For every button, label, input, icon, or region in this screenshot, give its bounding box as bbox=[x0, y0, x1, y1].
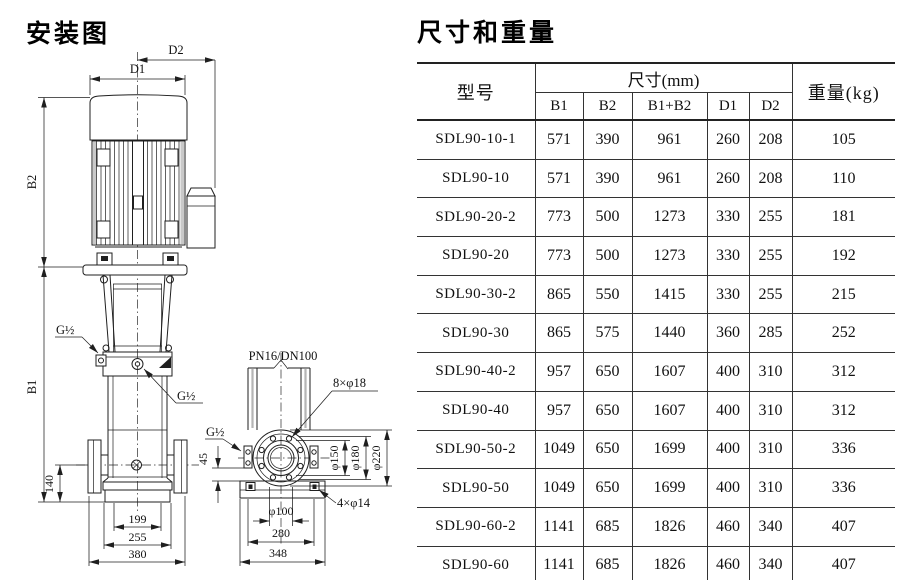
junction-box bbox=[187, 196, 215, 248]
cell-b1b2: 1273 bbox=[632, 198, 707, 237]
pump-side-view: PN16/DN100 bbox=[196, 349, 392, 566]
cell-b2: 390 bbox=[583, 120, 632, 159]
d2-label: D2 bbox=[168, 43, 183, 57]
dim255-label: 255 bbox=[129, 530, 147, 544]
phi150-label: φ150 bbox=[327, 446, 341, 471]
header-d2: D2 bbox=[749, 93, 792, 121]
cell-model: SDL90-30-2 bbox=[417, 275, 535, 314]
table-body: SDL90-10-1 571 390 961 260 208 105 SDL90… bbox=[417, 120, 895, 580]
cell-d1: 400 bbox=[707, 430, 749, 469]
cell-d1: 330 bbox=[707, 275, 749, 314]
cell-d1: 460 bbox=[707, 546, 749, 580]
side-g-half-label: G½ bbox=[206, 425, 224, 439]
head-side-fitting bbox=[96, 355, 106, 366]
cell-b2: 575 bbox=[583, 314, 632, 353]
cell-d1: 400 bbox=[707, 469, 749, 508]
cell-d2: 208 bbox=[749, 159, 792, 198]
motor-foot-slot bbox=[167, 256, 174, 261]
cell-d2: 340 bbox=[749, 507, 792, 546]
cell-model: SDL90-40-2 bbox=[417, 353, 535, 392]
table-row: SDL90-30 865 575 1440 360 285 252 bbox=[417, 314, 895, 353]
dimensions-weight-title: 尺寸和重量 bbox=[417, 13, 557, 49]
table-row: SDL90-60-2 1141 685 1826 460 340 407 bbox=[417, 507, 895, 546]
header-model: 型号 bbox=[417, 63, 535, 120]
cell-b1b2: 1440 bbox=[632, 314, 707, 353]
mounting-plate bbox=[83, 265, 187, 275]
cell-d1: 360 bbox=[707, 314, 749, 353]
datasheet-page: 安装图 尺寸和重量 bbox=[0, 0, 900, 580]
cell-d1: 400 bbox=[707, 391, 749, 430]
cell-b1b2: 1607 bbox=[632, 353, 707, 392]
cell-model: SDL90-10-1 bbox=[417, 120, 535, 159]
cell-weight: 407 bbox=[792, 507, 895, 546]
cell-d1: 260 bbox=[707, 159, 749, 198]
cell-b2: 650 bbox=[583, 430, 632, 469]
header-weight: 重量(kg) bbox=[792, 63, 895, 120]
cell-b1: 865 bbox=[535, 314, 583, 353]
cell-model: SDL90-30 bbox=[417, 314, 535, 353]
cell-b1: 1141 bbox=[535, 546, 583, 580]
g-half-mid-leader bbox=[144, 369, 176, 403]
bolt4-label: 4×φ14 bbox=[337, 496, 371, 510]
dim45-extensions bbox=[212, 468, 244, 481]
side-g-half-leader bbox=[223, 439, 241, 451]
cell-model: SDL90-50-2 bbox=[417, 430, 535, 469]
motor-vent-slot bbox=[165, 149, 178, 166]
base-bolt-slot bbox=[249, 485, 253, 490]
cell-d2: 310 bbox=[749, 430, 792, 469]
cell-model: SDL90-20 bbox=[417, 237, 535, 276]
plate-bolt-right bbox=[167, 276, 174, 283]
phi100-label: φ100 bbox=[269, 504, 294, 518]
header-size-group: 尺寸(mm) bbox=[535, 63, 792, 93]
g-half-mid-label: G½ bbox=[177, 389, 195, 403]
cell-weight: 105 bbox=[792, 120, 895, 159]
table-row: SDL90-10-1 571 390 961 260 208 105 bbox=[417, 120, 895, 159]
cell-d1: 460 bbox=[707, 507, 749, 546]
header-b1b2: B1+B2 bbox=[632, 93, 707, 121]
cell-b1b2: 1826 bbox=[632, 507, 707, 546]
head-right-fitting bbox=[159, 357, 171, 368]
cell-b1: 773 bbox=[535, 237, 583, 276]
cell-d2: 255 bbox=[749, 198, 792, 237]
motor-shaft-key bbox=[134, 196, 143, 209]
table-row: SDL90-20 773 500 1273 330 255 192 bbox=[417, 237, 895, 276]
cell-d2: 285 bbox=[749, 314, 792, 353]
cell-b1b2: 1607 bbox=[632, 391, 707, 430]
cell-b1b2: 1415 bbox=[632, 275, 707, 314]
cell-b1b2: 961 bbox=[632, 159, 707, 198]
table-row: SDL90-40-2 957 650 1607 400 310 312 bbox=[417, 353, 895, 392]
leg-bolt bbox=[103, 345, 109, 351]
cell-d1: 400 bbox=[707, 353, 749, 392]
cell-b1: 571 bbox=[535, 159, 583, 198]
cell-d1: 330 bbox=[707, 198, 749, 237]
junction-box-roof bbox=[187, 188, 215, 196]
cell-b1: 1049 bbox=[535, 469, 583, 508]
left-port-flange bbox=[88, 440, 101, 493]
cell-weight: 181 bbox=[792, 198, 895, 237]
b1-label: B1 bbox=[25, 380, 39, 395]
table-row: SDL90-60 1141 685 1826 460 340 407 bbox=[417, 546, 895, 580]
phi180-label: φ180 bbox=[348, 446, 362, 471]
cell-d2: 310 bbox=[749, 391, 792, 430]
dim140-label: 140 bbox=[42, 475, 56, 493]
cell-model: SDL90-20-2 bbox=[417, 198, 535, 237]
bolt4-leader bbox=[319, 490, 336, 503]
table-row: SDL90-40 957 650 1607 400 310 312 bbox=[417, 391, 895, 430]
header-b1: B1 bbox=[535, 93, 583, 121]
cell-d2: 255 bbox=[749, 237, 792, 276]
table-row: SDL90-20-2 773 500 1273 330 255 181 bbox=[417, 198, 895, 237]
cell-weight: 336 bbox=[792, 430, 895, 469]
pipe-shading bbox=[253, 369, 306, 428]
right-port-flange bbox=[174, 440, 187, 493]
motor-shading-left bbox=[93, 142, 97, 244]
motor-cap bbox=[90, 95, 187, 140]
table-row: SDL90-50-2 1049 650 1699 400 310 336 bbox=[417, 430, 895, 469]
phi220-label: φ220 bbox=[369, 446, 383, 471]
cell-b1b2: 1699 bbox=[632, 430, 707, 469]
dim45-label: 45 bbox=[196, 453, 210, 465]
motor-shaft-channel bbox=[133, 141, 144, 245]
cell-model: SDL90-60 bbox=[417, 546, 535, 580]
cell-b1: 773 bbox=[535, 198, 583, 237]
dimensions-table: 型号 尺寸(mm) 重量(kg) B1 B2 B1+B2 D1 D2 SDL90… bbox=[417, 62, 895, 580]
cell-b2: 685 bbox=[583, 546, 632, 580]
pump-front-view: D2 D1 B2 B1 140 199 255 380 G½ bbox=[25, 43, 215, 566]
cell-weight: 110 bbox=[792, 159, 895, 198]
dim348-label: 348 bbox=[269, 546, 287, 560]
pipe-walls bbox=[248, 368, 310, 430]
cell-b2: 390 bbox=[583, 159, 632, 198]
table-row: SDL90-30-2 865 550 1415 330 255 215 bbox=[417, 275, 895, 314]
b2-label: B2 bbox=[25, 175, 39, 190]
base-bolt-slot bbox=[313, 485, 317, 490]
cell-b1: 1049 bbox=[535, 430, 583, 469]
cell-d2: 310 bbox=[749, 353, 792, 392]
cell-b1b2: 1699 bbox=[632, 469, 707, 508]
motor-vent-slot bbox=[97, 149, 110, 166]
cell-b1: 865 bbox=[535, 275, 583, 314]
cell-b2: 650 bbox=[583, 353, 632, 392]
cell-d1: 260 bbox=[707, 120, 749, 159]
cell-b2: 500 bbox=[583, 237, 632, 276]
dim380-label: 380 bbox=[129, 547, 147, 561]
cell-b1b2: 1826 bbox=[632, 546, 707, 580]
motor-shading-right bbox=[181, 142, 185, 244]
dim280-label: 280 bbox=[272, 526, 290, 540]
g-half-top-leader bbox=[82, 337, 98, 353]
motor-vent-slot bbox=[97, 221, 110, 238]
table-row: SDL90-10 571 390 961 260 208 110 bbox=[417, 159, 895, 198]
cell-b1: 957 bbox=[535, 353, 583, 392]
cell-d2: 208 bbox=[749, 120, 792, 159]
cell-b2: 650 bbox=[583, 469, 632, 508]
cell-b1: 571 bbox=[535, 120, 583, 159]
cell-model: SDL90-60-2 bbox=[417, 507, 535, 546]
cell-weight: 336 bbox=[792, 469, 895, 508]
installation-diagram: D2 D1 B2 B1 140 199 255 380 G½ bbox=[0, 0, 412, 580]
cell-model: SDL90-40 bbox=[417, 391, 535, 430]
cell-b1: 957 bbox=[535, 391, 583, 430]
cell-weight: 252 bbox=[792, 314, 895, 353]
cell-weight: 192 bbox=[792, 237, 895, 276]
header-b2: B2 bbox=[583, 93, 632, 121]
cell-b1b2: 961 bbox=[632, 120, 707, 159]
cell-d2: 340 bbox=[749, 546, 792, 580]
cell-d2: 255 bbox=[749, 275, 792, 314]
cell-b2: 550 bbox=[583, 275, 632, 314]
cell-weight: 312 bbox=[792, 353, 895, 392]
header-d1: D1 bbox=[707, 93, 749, 121]
motor-vent-slot bbox=[165, 221, 178, 238]
motor-foot-slot bbox=[101, 256, 108, 261]
g-half-top-label: G½ bbox=[56, 323, 74, 337]
cell-b2: 685 bbox=[583, 507, 632, 546]
cell-model: SDL90-10 bbox=[417, 159, 535, 198]
cell-weight: 407 bbox=[792, 546, 895, 580]
cell-b1: 1141 bbox=[535, 507, 583, 546]
cell-b2: 650 bbox=[583, 391, 632, 430]
cell-weight: 312 bbox=[792, 391, 895, 430]
d1-label: D1 bbox=[130, 62, 145, 76]
cell-d2: 310 bbox=[749, 469, 792, 508]
cell-b1b2: 1273 bbox=[632, 237, 707, 276]
table-header: 型号 尺寸(mm) 重量(kg) B1 B2 B1+B2 D1 D2 bbox=[417, 63, 895, 120]
bolt8-label: 8×φ18 bbox=[333, 376, 366, 390]
dim199-label: 199 bbox=[129, 512, 147, 526]
cell-weight: 215 bbox=[792, 275, 895, 314]
cell-d1: 330 bbox=[707, 237, 749, 276]
cell-model: SDL90-50 bbox=[417, 469, 535, 508]
table-row: SDL90-50 1049 650 1699 400 310 336 bbox=[417, 469, 895, 508]
pn16-dn100-label: PN16/DN100 bbox=[249, 349, 318, 363]
cell-b2: 500 bbox=[583, 198, 632, 237]
